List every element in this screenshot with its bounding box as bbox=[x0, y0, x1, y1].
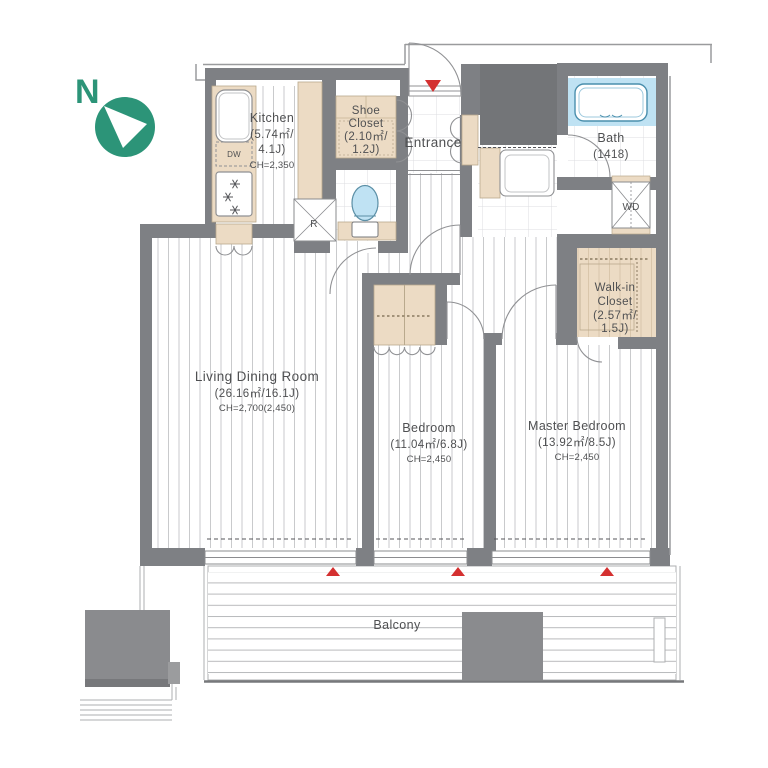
svg-text:Walk-in: Walk-in bbox=[595, 282, 636, 294]
svg-text:Bedroom: Bedroom bbox=[402, 421, 456, 435]
svg-text:4.1J): 4.1J) bbox=[258, 144, 286, 156]
stove bbox=[216, 172, 252, 216]
pipe-shaft bbox=[480, 64, 557, 145]
balcony-deck bbox=[208, 572, 676, 674]
svg-text:Bath: Bath bbox=[597, 131, 624, 145]
svg-text:Master Bedroom: Master Bedroom bbox=[528, 419, 626, 433]
floor-plan: DW R bbox=[0, 0, 768, 768]
svg-text:(2.57㎡/: (2.57㎡/ bbox=[593, 309, 637, 322]
svg-text:(1418): (1418) bbox=[593, 149, 629, 161]
svg-text:Shoe: Shoe bbox=[352, 105, 380, 117]
column-center bbox=[462, 612, 543, 680]
svg-text:1.5J): 1.5J) bbox=[601, 323, 629, 335]
svg-text:CH=2,450: CH=2,450 bbox=[555, 452, 600, 463]
hallway-floor bbox=[408, 173, 460, 273]
balcony-label: Balcony bbox=[373, 618, 421, 632]
svg-text:Living Dining Room: Living Dining Room bbox=[195, 369, 319, 384]
north-indicator: N bbox=[75, 73, 155, 157]
svg-text:(5.74㎡/: (5.74㎡/ bbox=[250, 128, 294, 141]
svg-text:CH=2,700(2,450): CH=2,700(2,450) bbox=[219, 403, 295, 414]
dishwasher-label: DW bbox=[227, 150, 241, 159]
refrigerator-space: R bbox=[294, 199, 336, 241]
svg-text:CH=2,450: CH=2,450 bbox=[407, 454, 452, 465]
kitchen-sink bbox=[216, 90, 252, 142]
washer-dryer-space: WD bbox=[612, 176, 650, 234]
hall-cabinet bbox=[462, 115, 478, 165]
floor-plan-page: DW R bbox=[0, 0, 768, 768]
svg-text:(13.92㎡/8.5J): (13.92㎡/8.5J) bbox=[538, 436, 616, 449]
svg-text:(26.16㎡/16.1J): (26.16㎡/16.1J) bbox=[215, 387, 300, 400]
washer-dryer-label: WD bbox=[622, 202, 639, 213]
kitchen-low-cabinet bbox=[216, 224, 252, 244]
bathtub bbox=[568, 78, 656, 126]
bedroom-closet bbox=[374, 285, 435, 345]
svg-text:(11.04㎡/6.8J): (11.04㎡/6.8J) bbox=[390, 438, 467, 451]
svg-text:Closet: Closet bbox=[349, 118, 384, 130]
balcony-post bbox=[654, 618, 665, 662]
svg-text:Kitchen: Kitchen bbox=[250, 111, 295, 125]
svg-text:Closet: Closet bbox=[598, 296, 633, 308]
entrance-label: Entrance bbox=[404, 135, 461, 150]
vanity bbox=[478, 148, 557, 199]
svg-text:1.2J): 1.2J) bbox=[352, 144, 380, 156]
svg-text:CH=2,350: CH=2,350 bbox=[250, 160, 295, 171]
refrigerator-label: R bbox=[310, 219, 317, 230]
kitchen-tall-cabinet bbox=[298, 82, 322, 200]
neighbor-hatch bbox=[80, 684, 176, 720]
north-label: N bbox=[75, 73, 100, 111]
column-left bbox=[85, 610, 170, 686]
balcony bbox=[80, 566, 684, 720]
svg-text:(2.10㎡/: (2.10㎡/ bbox=[344, 130, 388, 143]
